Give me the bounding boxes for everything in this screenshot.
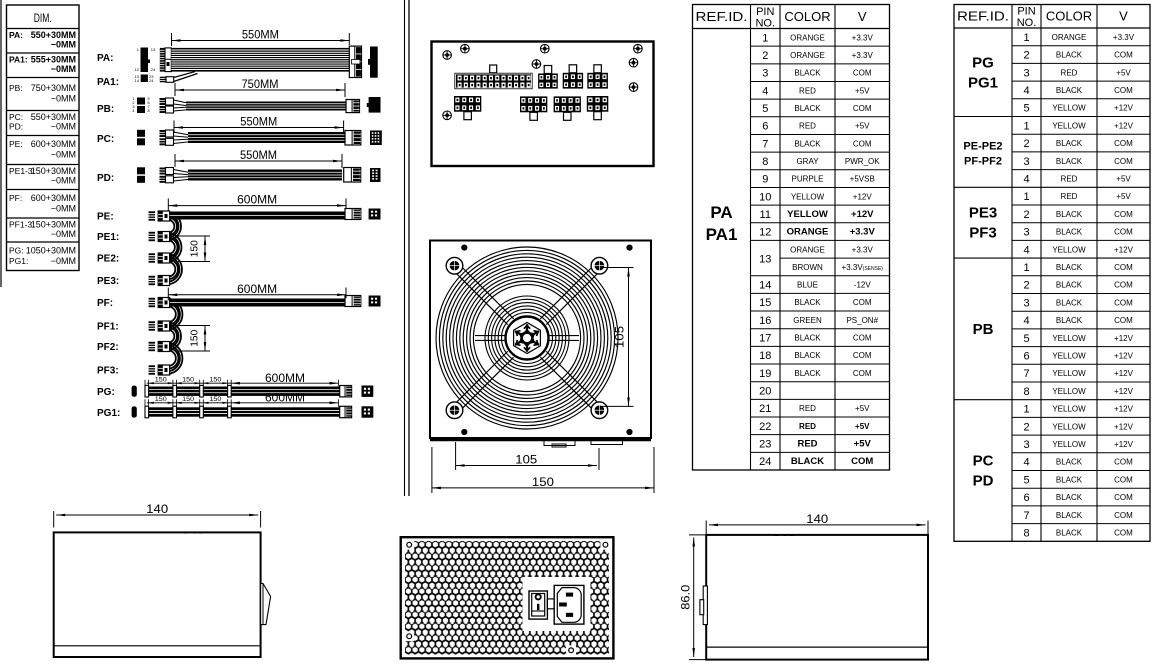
svg-text:COLOR: COLOR xyxy=(1046,9,1092,24)
svg-text:RED: RED xyxy=(1061,174,1078,183)
svg-text:24: 24 xyxy=(151,67,156,72)
svg-text:PF3: PF3 xyxy=(969,225,997,242)
svg-text:1: 1 xyxy=(1023,262,1029,274)
svg-text:600MM: 600MM xyxy=(237,193,277,207)
svg-text:BLACK: BLACK xyxy=(1056,263,1083,272)
svg-text:+5V: +5V xyxy=(855,86,870,95)
svg-text:150: 150 xyxy=(209,396,221,403)
svg-text:PG1:: PG1: xyxy=(97,408,120,419)
svg-text:15: 15 xyxy=(759,297,771,309)
svg-text:BLACK: BLACK xyxy=(794,334,821,343)
svg-text:−0MM: −0MM xyxy=(51,176,76,186)
svg-text:5: 5 xyxy=(1023,103,1029,115)
svg-text:YELLOW: YELLOW xyxy=(1052,104,1086,113)
svg-text:140: 140 xyxy=(806,512,828,526)
svg-text:PB:: PB: xyxy=(97,104,114,115)
svg-text:550MM: 550MM xyxy=(240,115,277,129)
svg-text:3: 3 xyxy=(1023,227,1029,239)
svg-text:4: 4 xyxy=(1023,244,1029,256)
svg-text:21: 21 xyxy=(759,403,771,415)
svg-text:600+30MM: 600+30MM xyxy=(31,139,76,149)
svg-text:PE:: PE: xyxy=(9,139,23,149)
svg-text:PC: PC xyxy=(973,453,994,470)
svg-text:COM: COM xyxy=(1114,228,1133,237)
svg-text:5: 5 xyxy=(762,103,768,115)
svg-text:BLACK: BLACK xyxy=(1056,316,1083,325)
svg-text:600MM: 600MM xyxy=(237,282,277,296)
svg-text:−0MM: −0MM xyxy=(51,40,76,50)
svg-text:8: 8 xyxy=(1023,527,1029,539)
svg-text:550+30MM: 550+30MM xyxy=(31,30,76,40)
svg-text:1: 1 xyxy=(1023,120,1029,132)
svg-text:YELLOW: YELLOW xyxy=(1052,351,1086,360)
svg-text:24: 24 xyxy=(149,78,154,83)
svg-text:BLACK: BLACK xyxy=(794,351,821,360)
svg-text:PA1:: PA1: xyxy=(97,77,119,88)
svg-text:BLACK: BLACK xyxy=(1056,298,1083,307)
svg-text:23: 23 xyxy=(759,439,771,451)
svg-text:19: 19 xyxy=(759,368,771,380)
svg-text:150: 150 xyxy=(155,396,167,403)
svg-text:12: 12 xyxy=(759,227,771,239)
svg-text:22: 22 xyxy=(759,421,771,433)
svg-text:−0MM: −0MM xyxy=(51,64,76,74)
svg-text:PG1:: PG1: xyxy=(9,256,28,266)
svg-text:2: 2 xyxy=(1023,50,1029,62)
svg-text:1: 1 xyxy=(762,32,768,44)
svg-text:5: 5 xyxy=(1023,474,1029,486)
svg-text:13: 13 xyxy=(151,47,156,52)
svg-text:BLACK: BLACK xyxy=(1056,511,1083,520)
svg-text:COM: COM xyxy=(853,334,872,343)
svg-text:YELLOW: YELLOW xyxy=(1052,369,1086,378)
svg-text:550+30MM: 550+30MM xyxy=(31,112,76,122)
svg-text:6: 6 xyxy=(1023,350,1029,362)
svg-text:COM: COM xyxy=(1114,210,1133,219)
svg-text:150: 150 xyxy=(209,377,221,384)
svg-text:BROWN: BROWN xyxy=(792,263,823,272)
svg-text:PS_ON#: PS_ON# xyxy=(846,316,878,325)
svg-text:+12V: +12V xyxy=(1114,405,1134,414)
svg-text:PA1: PA1 xyxy=(706,225,738,244)
svg-text:8: 8 xyxy=(148,109,150,113)
svg-text:−0MM: −0MM xyxy=(51,94,76,104)
svg-text:RED: RED xyxy=(799,422,816,431)
svg-text:7: 7 xyxy=(1023,368,1029,380)
svg-text:BLACK: BLACK xyxy=(1056,51,1083,60)
svg-text:150: 150 xyxy=(155,377,167,384)
svg-text:PURPLE: PURPLE xyxy=(791,175,823,184)
svg-text:COM: COM xyxy=(853,369,872,378)
svg-text:PG:: PG: xyxy=(9,245,24,255)
svg-text:YELLOW: YELLOW xyxy=(1052,245,1086,254)
svg-text:PD: PD xyxy=(973,473,994,490)
svg-text:150: 150 xyxy=(182,396,194,403)
svg-text:BLACK: BLACK xyxy=(794,369,821,378)
svg-text:+12V: +12V xyxy=(1114,387,1134,396)
svg-text:PB:: PB: xyxy=(9,83,23,93)
svg-text:1050+30MM: 1050+30MM xyxy=(26,245,76,255)
svg-text:+12V: +12V xyxy=(1114,334,1134,343)
svg-text:555+30MM: 555+30MM xyxy=(31,55,76,65)
svg-text:BLACK: BLACK xyxy=(1056,458,1083,467)
svg-text:RED: RED xyxy=(799,122,816,131)
svg-text:RED: RED xyxy=(1061,68,1078,77)
svg-text:PF2:: PF2: xyxy=(97,342,119,353)
svg-text:ORANGE: ORANGE xyxy=(790,33,825,42)
svg-text:+3.3V(SENSE): +3.3V(SENSE) xyxy=(842,263,884,272)
svg-text:550MM: 550MM xyxy=(242,28,279,42)
svg-text:150: 150 xyxy=(189,330,201,347)
svg-text:150: 150 xyxy=(182,377,194,384)
svg-text:3: 3 xyxy=(1023,67,1029,79)
svg-text:2: 2 xyxy=(1023,421,1029,433)
svg-text:PD:: PD: xyxy=(97,173,114,184)
svg-text:COM: COM xyxy=(853,69,872,78)
svg-text:150: 150 xyxy=(532,475,554,489)
svg-text:PE:: PE: xyxy=(97,212,114,223)
svg-text:NO.: NO. xyxy=(1017,17,1037,29)
svg-text:+12V: +12V xyxy=(1114,104,1134,113)
svg-text:BLACK: BLACK xyxy=(1056,528,1083,537)
svg-text:5: 5 xyxy=(1023,333,1029,345)
svg-text:RED: RED xyxy=(797,439,817,450)
svg-text:PF:: PF: xyxy=(9,193,22,203)
svg-text:+12V: +12V xyxy=(1114,440,1134,449)
svg-text:1: 1 xyxy=(1023,404,1029,416)
svg-text:600MM: 600MM xyxy=(265,391,305,405)
svg-text:ORANGE: ORANGE xyxy=(790,51,825,60)
svg-text:BLACK: BLACK xyxy=(1056,157,1083,166)
svg-text:PG: PG xyxy=(972,54,994,71)
svg-text:PA:: PA: xyxy=(9,30,23,40)
svg-text:17: 17 xyxy=(759,333,771,345)
svg-text:COM: COM xyxy=(1114,51,1133,60)
svg-text:+12V: +12V xyxy=(853,192,873,201)
svg-text:BLACK: BLACK xyxy=(1056,475,1083,484)
svg-text:PA:: PA: xyxy=(97,53,113,64)
svg-text:-12V: -12V xyxy=(854,281,872,290)
svg-text:RED: RED xyxy=(799,404,816,413)
svg-text:+3.3V: +3.3V xyxy=(850,227,876,238)
svg-text:+5V: +5V xyxy=(855,422,870,431)
svg-text:BLACK: BLACK xyxy=(1056,86,1083,95)
svg-text:COM: COM xyxy=(1114,458,1133,467)
svg-text:+5VSB: +5VSB xyxy=(850,175,875,184)
svg-text:20: 20 xyxy=(759,386,771,398)
svg-text:ORANGE: ORANGE xyxy=(787,227,829,238)
svg-text:+5V: +5V xyxy=(854,439,872,450)
svg-text:BLACK: BLACK xyxy=(1056,228,1083,237)
svg-text:PWR_OK: PWR_OK xyxy=(845,157,880,166)
svg-text:−0MM: −0MM xyxy=(51,256,76,266)
svg-text:24: 24 xyxy=(759,456,771,468)
svg-text:YELLOW: YELLOW xyxy=(1052,422,1086,431)
svg-text:1: 1 xyxy=(1023,32,1029,44)
svg-text:140: 140 xyxy=(146,502,168,516)
svg-text:−0MM: −0MM xyxy=(51,203,76,213)
svg-text:−0MM: −0MM xyxy=(51,150,76,160)
svg-text:COM: COM xyxy=(853,139,872,148)
svg-text:+5V: +5V xyxy=(1116,174,1131,183)
svg-text:+3.3V: +3.3V xyxy=(852,245,874,254)
svg-text:2: 2 xyxy=(1023,138,1029,150)
svg-text:+12V: +12V xyxy=(1114,351,1134,360)
svg-text:COM: COM xyxy=(853,351,872,360)
svg-text:3: 3 xyxy=(762,68,768,80)
svg-text:BLACK: BLACK xyxy=(794,69,821,78)
svg-text:PF:: PF: xyxy=(97,298,113,309)
svg-text:COM: COM xyxy=(1114,263,1133,272)
svg-text:YELLOW: YELLOW xyxy=(1052,334,1086,343)
svg-text:COM: COM xyxy=(853,104,872,113)
svg-text:PE2:: PE2: xyxy=(97,254,119,265)
svg-text:PC:: PC: xyxy=(9,112,23,122)
svg-text:4: 4 xyxy=(1023,85,1029,97)
svg-text:86.0: 86.0 xyxy=(679,584,693,609)
svg-text:600+30MM: 600+30MM xyxy=(31,193,76,203)
svg-text:4: 4 xyxy=(1023,173,1029,185)
svg-text:BLACK: BLACK xyxy=(1056,139,1083,148)
svg-text:PB: PB xyxy=(973,321,994,338)
svg-text:DIM.: DIM. xyxy=(34,11,52,25)
svg-text:COM: COM xyxy=(1114,157,1133,166)
svg-text:COM: COM xyxy=(1114,316,1133,325)
svg-text:BLUE: BLUE xyxy=(797,281,818,290)
svg-text:4: 4 xyxy=(132,109,134,113)
svg-text:13: 13 xyxy=(759,254,771,266)
svg-text:PE3:: PE3: xyxy=(97,276,119,287)
svg-text:9: 9 xyxy=(762,174,768,186)
svg-text:PG1: PG1 xyxy=(968,74,998,91)
svg-text:2: 2 xyxy=(1023,280,1029,292)
svg-text:105: 105 xyxy=(613,326,627,348)
svg-text:150: 150 xyxy=(189,240,201,257)
svg-text:RED: RED xyxy=(799,86,816,95)
svg-text:COM: COM xyxy=(1114,281,1133,290)
svg-text:1: 1 xyxy=(1023,191,1029,203)
svg-text:BLACK: BLACK xyxy=(794,139,821,148)
svg-text:150+30MM: 150+30MM xyxy=(31,220,76,230)
svg-text:105: 105 xyxy=(515,453,537,467)
svg-text:−0MM: −0MM xyxy=(51,229,76,239)
svg-text:6: 6 xyxy=(762,121,768,133)
svg-text:−0MM: −0MM xyxy=(51,122,76,132)
svg-text:PF-PF2: PF-PF2 xyxy=(964,155,1002,167)
svg-text:V: V xyxy=(1119,9,1128,24)
svg-text:+5V: +5V xyxy=(1116,192,1131,201)
svg-text:PF3:: PF3: xyxy=(97,366,119,377)
svg-text:PIN: PIN xyxy=(1017,6,1035,18)
svg-text:+5V: +5V xyxy=(855,404,870,413)
svg-text:GRAY: GRAY xyxy=(796,157,819,166)
svg-text:11: 11 xyxy=(760,209,771,221)
svg-text:COLOR: COLOR xyxy=(784,9,830,24)
svg-text:BLACK: BLACK xyxy=(1056,210,1083,219)
svg-text:ORANGE: ORANGE xyxy=(1052,33,1087,42)
svg-text:YELLOW: YELLOW xyxy=(791,192,825,201)
svg-text:4: 4 xyxy=(1023,457,1029,469)
svg-text:YELLOW: YELLOW xyxy=(1052,387,1086,396)
svg-text:PE3: PE3 xyxy=(969,205,997,222)
svg-text:RED: RED xyxy=(1061,192,1078,201)
svg-text:NO.: NO. xyxy=(755,18,775,30)
svg-text:REF.ID.: REF.ID. xyxy=(696,9,748,24)
svg-text:7: 7 xyxy=(762,138,768,150)
svg-text:YELLOW: YELLOW xyxy=(1052,440,1086,449)
svg-text:COM: COM xyxy=(1114,528,1133,537)
svg-text:14: 14 xyxy=(759,280,771,292)
svg-text:COM: COM xyxy=(1114,298,1133,307)
svg-text:+12V: +12V xyxy=(851,209,874,220)
svg-text:+5V: +5V xyxy=(855,122,870,131)
svg-text:PE-PE2: PE-PE2 xyxy=(963,140,1002,152)
svg-text:BLACK: BLACK xyxy=(1056,281,1083,290)
svg-text:PA: PA xyxy=(710,203,732,222)
svg-text:8: 8 xyxy=(1023,386,1029,398)
svg-text:BLACK: BLACK xyxy=(794,104,821,113)
svg-text:3: 3 xyxy=(1023,156,1029,168)
svg-text:16: 16 xyxy=(759,315,771,327)
svg-text:+12V: +12V xyxy=(1114,369,1134,378)
svg-text:+12V: +12V xyxy=(1114,121,1134,130)
svg-text:PIN: PIN xyxy=(756,6,774,18)
svg-text:+5V: +5V xyxy=(1116,68,1131,77)
svg-text:4: 4 xyxy=(762,85,768,97)
svg-text:1: 1 xyxy=(137,47,140,52)
svg-text:2: 2 xyxy=(1023,209,1029,221)
svg-text:550MM: 550MM xyxy=(240,148,277,162)
svg-text:PG:: PG: xyxy=(97,387,115,398)
svg-text:10: 10 xyxy=(759,191,771,203)
svg-text:+12V: +12V xyxy=(1114,422,1134,431)
svg-text:REF.ID.: REF.ID. xyxy=(957,9,1009,24)
svg-text:+12V: +12V xyxy=(1114,245,1134,254)
svg-text:600MM: 600MM xyxy=(265,371,305,385)
svg-text:PE1:: PE1: xyxy=(97,232,119,243)
svg-text:ORANGE: ORANGE xyxy=(790,245,825,254)
svg-text:COM: COM xyxy=(1114,139,1133,148)
svg-text:COM: COM xyxy=(1114,493,1133,502)
svg-text:V: V xyxy=(858,9,867,24)
svg-text:COM: COM xyxy=(1114,475,1133,484)
svg-text:PD:: PD: xyxy=(9,122,23,132)
svg-text:PF1:: PF1: xyxy=(97,322,119,333)
svg-text:8: 8 xyxy=(762,156,768,168)
svg-text:BLACK: BLACK xyxy=(1056,493,1083,502)
svg-text:GREEN: GREEN xyxy=(793,316,822,325)
svg-text:750+30MM: 750+30MM xyxy=(31,83,76,93)
svg-text:YELLOW: YELLOW xyxy=(787,209,828,220)
svg-text:3: 3 xyxy=(1023,439,1029,451)
svg-text:BLACK: BLACK xyxy=(794,298,821,307)
svg-text:4: 4 xyxy=(1023,315,1029,327)
svg-text:3: 3 xyxy=(1023,297,1029,309)
svg-text:+3.3V: +3.3V xyxy=(852,51,874,60)
svg-text:12: 12 xyxy=(135,67,140,72)
svg-text:18: 18 xyxy=(759,350,771,362)
svg-text:COM: COM xyxy=(1114,511,1133,520)
svg-text:150+30MM: 150+30MM xyxy=(31,166,76,176)
svg-text:COM: COM xyxy=(851,456,873,467)
svg-text:PC:: PC: xyxy=(97,134,114,145)
svg-text:6: 6 xyxy=(1023,492,1029,504)
svg-text:750MM: 750MM xyxy=(242,77,279,91)
svg-text:2: 2 xyxy=(762,50,768,62)
svg-text:YELLOW: YELLOW xyxy=(1052,405,1086,414)
svg-text:BLACK: BLACK xyxy=(791,456,824,467)
svg-text:7: 7 xyxy=(1023,510,1029,522)
svg-text:14: 14 xyxy=(135,78,140,83)
svg-text:COM: COM xyxy=(1114,86,1133,95)
svg-text:+3.3V: +3.3V xyxy=(852,33,874,42)
svg-text:COM: COM xyxy=(853,298,872,307)
svg-text:+3.3V: +3.3V xyxy=(1113,33,1135,42)
svg-text:PA1:: PA1: xyxy=(9,55,28,65)
svg-text:YELLOW: YELLOW xyxy=(1052,121,1086,130)
